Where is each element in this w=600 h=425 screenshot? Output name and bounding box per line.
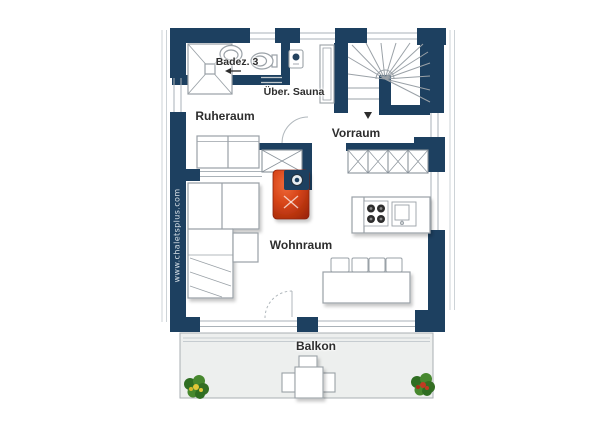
dining-table <box>323 272 410 303</box>
sauna-heater <box>289 50 303 68</box>
room-label-living-room: Wohnraum <box>270 238 332 252</box>
wardrobe <box>348 150 428 173</box>
room-label-rest-room: Ruheraum <box>195 109 254 123</box>
room-divider-line <box>200 172 262 177</box>
door-arc-balcony <box>265 291 292 318</box>
room-label-anteroom: Vorraum <box>332 126 380 140</box>
balcony-chair-right <box>322 373 335 392</box>
sofa <box>197 136 259 168</box>
stair-direction-arrow <box>364 112 372 119</box>
kitchen-counter <box>352 197 430 233</box>
balcony-chair-left <box>282 373 295 392</box>
cooktop <box>364 201 388 226</box>
watermark-url: www.chaletsplus.com <box>173 181 186 291</box>
tiled-stove <box>273 170 309 219</box>
door-arc-ruheraum <box>282 117 308 143</box>
floorplan-drawing <box>0 0 600 425</box>
balcony-chair-top <box>299 356 317 368</box>
side-table <box>233 233 258 262</box>
dining-chairs <box>331 258 402 272</box>
room-label-sauna: Über. Sauna <box>264 86 325 98</box>
shaft-cabinet <box>262 150 302 172</box>
room-label-bathroom: Badez. 3 <box>216 56 259 68</box>
floorplan-page: Badez. 3 Über. Sauna Ruheraum Vorraum Wo… <box>0 0 600 425</box>
kitchen-sink <box>392 202 416 226</box>
room-label-balcony: Balkon <box>296 339 336 353</box>
